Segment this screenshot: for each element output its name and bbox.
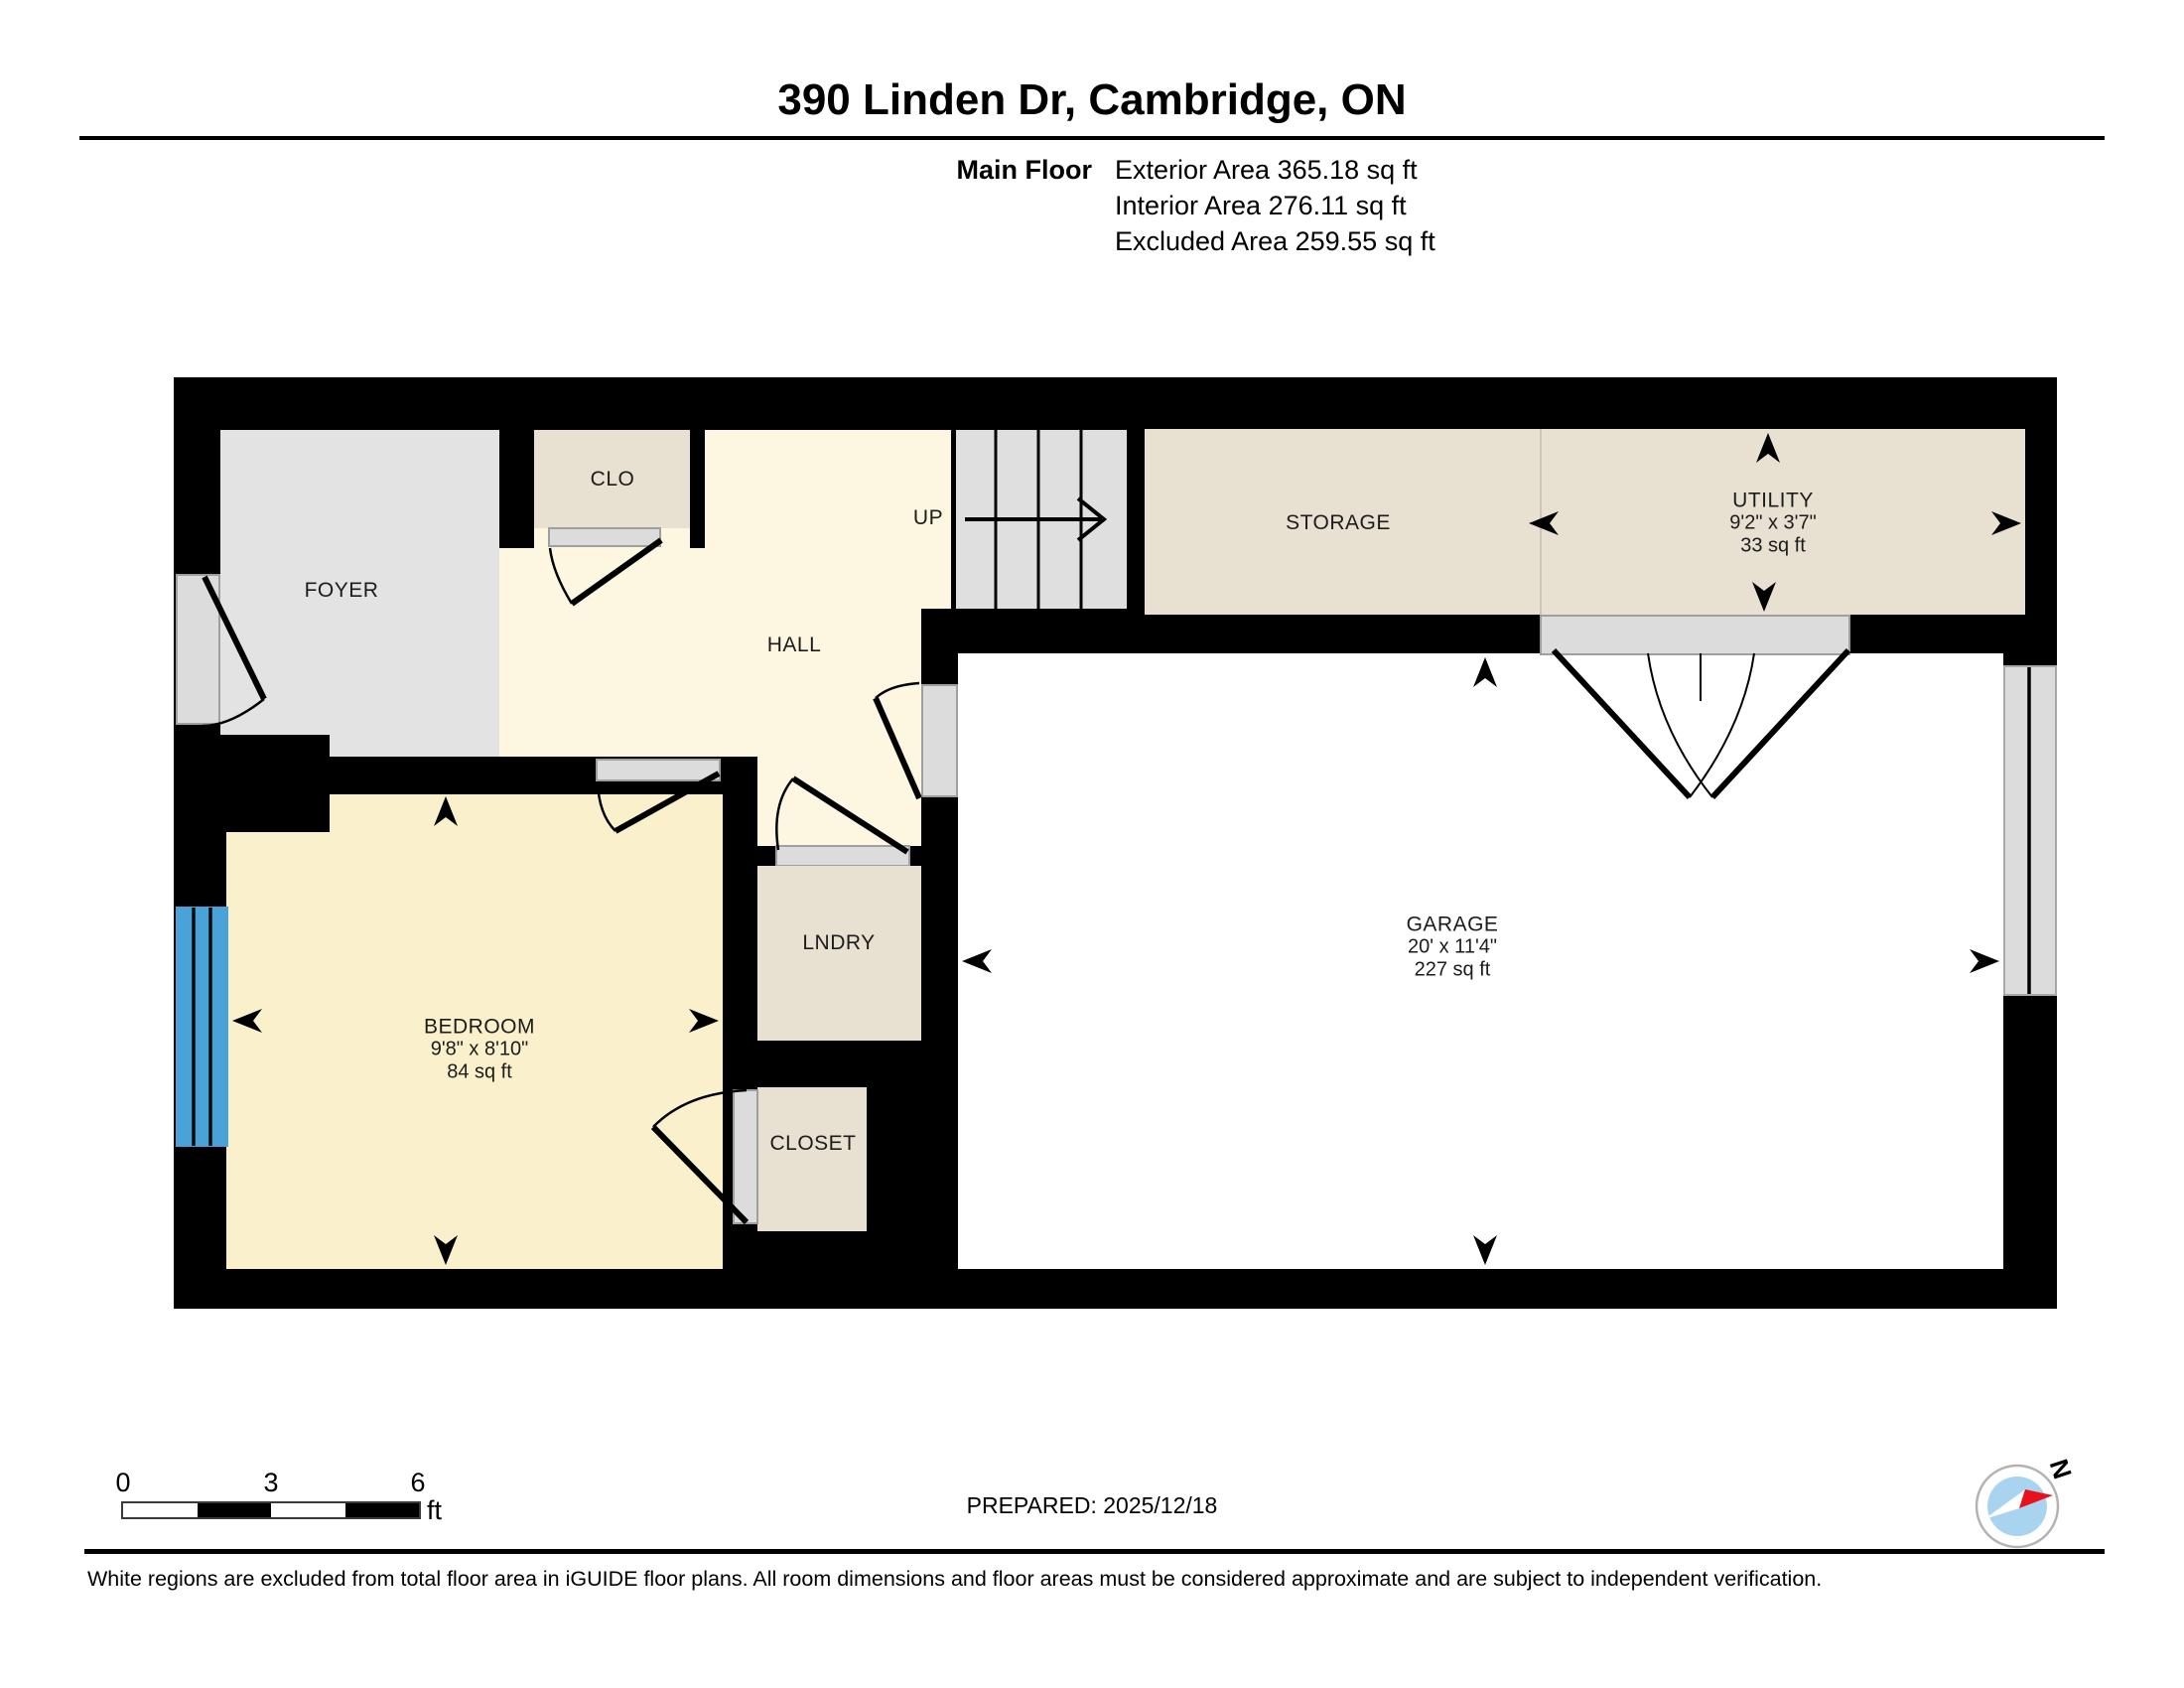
storage-label: STORAGE xyxy=(1286,511,1391,535)
bedroom-window xyxy=(176,907,228,1147)
bedroom-label: BEDROOM xyxy=(424,1016,535,1039)
wall-entry-corner-block xyxy=(174,735,330,832)
prepared-date: PREPARED: 2025/12/18 xyxy=(0,1492,2184,1519)
interior-area-stat: Interior Area 276.11 sq ft xyxy=(1115,191,1710,221)
storage-utility-divider xyxy=(1540,429,1542,615)
garage-double-door-recess xyxy=(1540,615,1850,655)
footer-divider xyxy=(84,1549,2105,1554)
floor-name-label: Main Floor xyxy=(854,155,1092,186)
utility-area: 33 sq ft xyxy=(1729,535,1816,558)
page-title: 390 Linden Dr, Cambridge, ON xyxy=(0,75,2184,125)
garage-label-block: GARAGE 20' x 11'4" 227 sq ft xyxy=(1407,914,1499,982)
hall-label: HALL xyxy=(767,633,822,657)
garage-dimensions: 20' x 11'4" xyxy=(1407,936,1499,959)
exterior-area-stat: Exterior Area 365.18 sq ft xyxy=(1115,155,1710,186)
closet-door-recess xyxy=(733,1089,758,1224)
entry-door-recess xyxy=(176,574,220,725)
foyer-label: FOYER xyxy=(305,579,379,603)
excluded-area-stat: Excluded Area 259.55 sq ft xyxy=(1115,226,1710,257)
garage-area: 227 sq ft xyxy=(1407,959,1499,982)
wall-clo-hall xyxy=(690,430,705,548)
storage-utility-room-area xyxy=(1145,429,2025,615)
bedroom-dimensions: 9'8" x 8'10" xyxy=(424,1039,535,1061)
wall-foyer-clo xyxy=(499,430,534,548)
compass-north-label: N xyxy=(2043,1456,2078,1482)
utility-dimensions: 9'2" x 3'7" xyxy=(1729,512,1816,535)
garage-overhead-door xyxy=(2003,665,2057,996)
bedroom-label-block: BEDROOM 9'8" x 8'10" 84 sq ft xyxy=(424,1016,535,1084)
bedroom-door-recess xyxy=(596,759,721,781)
utility-label: UTILITY xyxy=(1729,490,1816,512)
bedroom-area: 84 sq ft xyxy=(424,1061,535,1084)
header-divider xyxy=(79,136,2105,140)
lndry-door-recess xyxy=(775,845,910,867)
closet-label: CLOSET xyxy=(769,1132,856,1156)
stairs-up-label: UP xyxy=(913,506,943,530)
lndry-label: LNDRY xyxy=(802,931,875,955)
disclaimer-text: White regions are excluded from total fl… xyxy=(87,1567,2113,1592)
utility-label-block: UTILITY 9'2" x 3'7" 33 sq ft xyxy=(1729,490,1816,558)
clo-door-recess xyxy=(548,527,661,547)
stairs-area xyxy=(956,430,1127,609)
hall-garage-door-recess xyxy=(921,684,958,797)
clo-label: CLO xyxy=(591,468,635,492)
garage-label: GARAGE xyxy=(1407,914,1499,936)
closet-room-area xyxy=(757,1087,867,1231)
